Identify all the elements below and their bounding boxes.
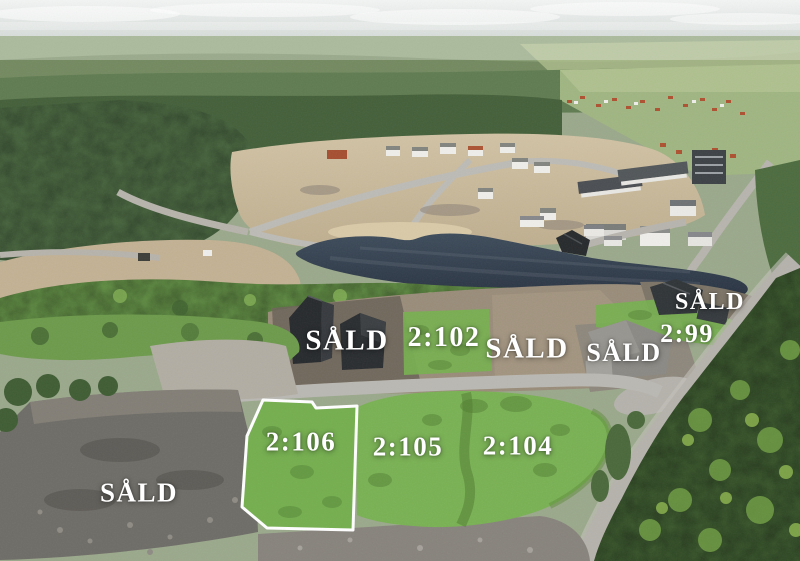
- aerial-scene: [0, 0, 800, 561]
- photo-grain: [0, 0, 800, 561]
- aerial-photo: SÅLD 2:102 SÅLD SÅLD 2:99 SÅLD 2:106 2:1…: [0, 0, 800, 561]
